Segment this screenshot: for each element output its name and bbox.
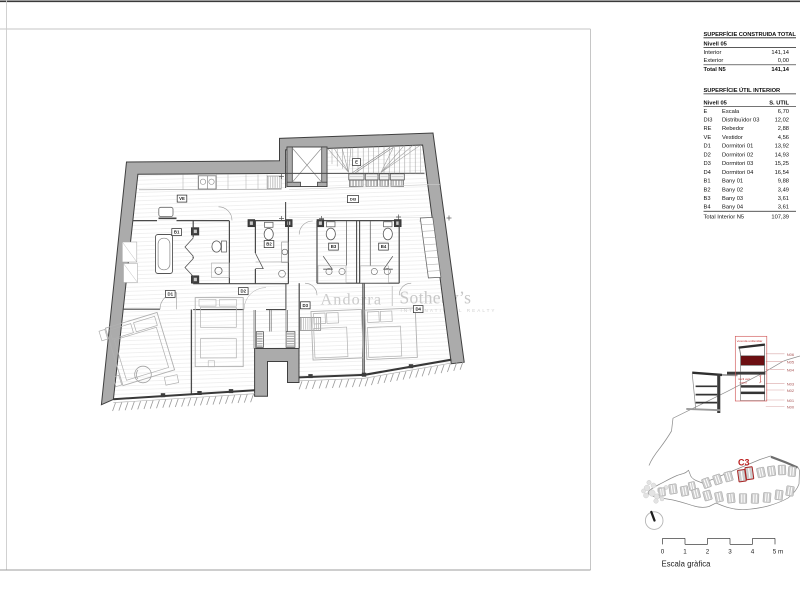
svg-text:N02: N02 xyxy=(787,388,795,393)
svg-text:comú: comú xyxy=(740,380,748,384)
svg-text:D4: D4 xyxy=(415,307,421,312)
svg-text:Bany 02: Bany 02 xyxy=(722,187,743,193)
svg-text:SUPERFÍCIE ÚTIL INTERIOR: SUPERFÍCIE ÚTIL INTERIOR xyxy=(704,86,782,94)
svg-text:B4: B4 xyxy=(381,244,387,249)
svg-text:Bany 03: Bany 03 xyxy=(722,196,743,202)
svg-text:Dormitori 01: Dormitori 01 xyxy=(722,144,753,150)
svg-text:Rebedor: Rebedor xyxy=(722,126,744,132)
svg-text:9,88: 9,88 xyxy=(778,179,789,185)
svg-text:D3: D3 xyxy=(704,161,711,167)
svg-text:14,93: 14,93 xyxy=(775,152,789,158)
svg-text:N05: N05 xyxy=(787,359,795,364)
svg-text:E: E xyxy=(355,160,358,165)
svg-text:D2: D2 xyxy=(704,152,711,158)
svg-text:N03: N03 xyxy=(787,381,795,386)
svg-text:Vestidor: Vestidor xyxy=(722,135,743,141)
svg-text:B3: B3 xyxy=(704,196,711,202)
svg-text:N01: N01 xyxy=(787,398,795,403)
svg-text:VE: VE xyxy=(704,135,712,141)
svg-text:Escala: Escala xyxy=(722,109,740,115)
svg-text:B2: B2 xyxy=(266,242,272,247)
svg-text:Bany 04: Bany 04 xyxy=(722,205,744,211)
svg-text:Escala gràfica: Escala gràfica xyxy=(662,560,712,569)
svg-text:N06: N06 xyxy=(787,352,795,357)
svg-text:0: 0 xyxy=(661,548,665,555)
svg-text:1: 1 xyxy=(683,548,687,555)
svg-text:C3: C3 xyxy=(738,458,750,468)
svg-text:D1: D1 xyxy=(704,144,711,150)
svg-text:3,61: 3,61 xyxy=(778,196,789,202)
svg-text:vivenda unifamiliar: vivenda unifamiliar xyxy=(737,339,763,343)
svg-text:D2: D2 xyxy=(241,289,247,294)
svg-text:2,88: 2,88 xyxy=(778,126,789,132)
svg-text:16,54: 16,54 xyxy=(775,170,790,176)
svg-text:SUPERFÍCIE CONSTRUIDA TOTAL: SUPERFÍCIE CONSTRUIDA TOTAL xyxy=(704,30,797,38)
svg-text:DI3: DI3 xyxy=(350,197,357,202)
svg-text:Total N5: Total N5 xyxy=(704,67,727,73)
svg-text:Nivell 05: Nivell 05 xyxy=(704,42,728,48)
svg-text:Dormitori 03: Dormitori 03 xyxy=(722,161,753,167)
svg-text:0,00: 0,00 xyxy=(778,58,789,64)
svg-text:Sotheby’s: Sotheby’s xyxy=(400,288,472,308)
svg-text:B4: B4 xyxy=(704,205,712,211)
svg-text:141,14: 141,14 xyxy=(771,67,789,73)
svg-text:Andorra: Andorra xyxy=(321,291,383,309)
svg-text:VE: VE xyxy=(179,196,185,201)
svg-text:E: E xyxy=(704,109,708,115)
svg-text:Bany 01: Bany 01 xyxy=(722,179,743,185)
svg-text:12,02: 12,02 xyxy=(775,118,789,124)
svg-text:4: 4 xyxy=(751,548,755,555)
svg-text:D3: D3 xyxy=(303,303,309,308)
svg-text:S. UTIL: S. UTIL xyxy=(769,100,789,106)
svg-text:B1: B1 xyxy=(704,179,711,185)
svg-text:N04: N04 xyxy=(787,367,795,372)
svg-text:B1: B1 xyxy=(174,230,180,235)
svg-text:107,39: 107,39 xyxy=(771,215,789,221)
svg-text:Nivell 05: Nivell 05 xyxy=(704,100,728,106)
svg-text:RE: RE xyxy=(704,126,712,132)
svg-text:Dormitori 02: Dormitori 02 xyxy=(722,152,753,158)
svg-text:15,25: 15,25 xyxy=(775,161,789,167)
svg-text:Interior: Interior xyxy=(704,50,722,56)
svg-text:Dormitori 04: Dormitori 04 xyxy=(722,170,754,176)
svg-text:13,92: 13,92 xyxy=(775,144,789,150)
svg-text:B2: B2 xyxy=(704,187,711,193)
svg-text:B3: B3 xyxy=(331,244,337,249)
svg-text:2: 2 xyxy=(706,548,710,555)
svg-text:N00: N00 xyxy=(787,404,795,409)
svg-text:6,70: 6,70 xyxy=(778,109,789,115)
svg-text:3: 3 xyxy=(728,548,732,555)
svg-text:4,56: 4,56 xyxy=(778,135,789,141)
svg-text:Exterior: Exterior xyxy=(704,58,724,64)
svg-text:3,49: 3,49 xyxy=(778,187,789,193)
svg-text:D1: D1 xyxy=(168,292,174,297)
svg-text:Total Interior N5: Total Interior N5 xyxy=(704,215,745,221)
svg-text:DI3: DI3 xyxy=(704,118,713,124)
svg-text:5 m: 5 m xyxy=(773,548,784,555)
svg-text:D4: D4 xyxy=(704,170,712,176)
svg-text:Distribuïdor 03: Distribuïdor 03 xyxy=(722,118,759,124)
svg-text:3,61: 3,61 xyxy=(778,205,789,211)
svg-text:141,14: 141,14 xyxy=(771,50,789,56)
